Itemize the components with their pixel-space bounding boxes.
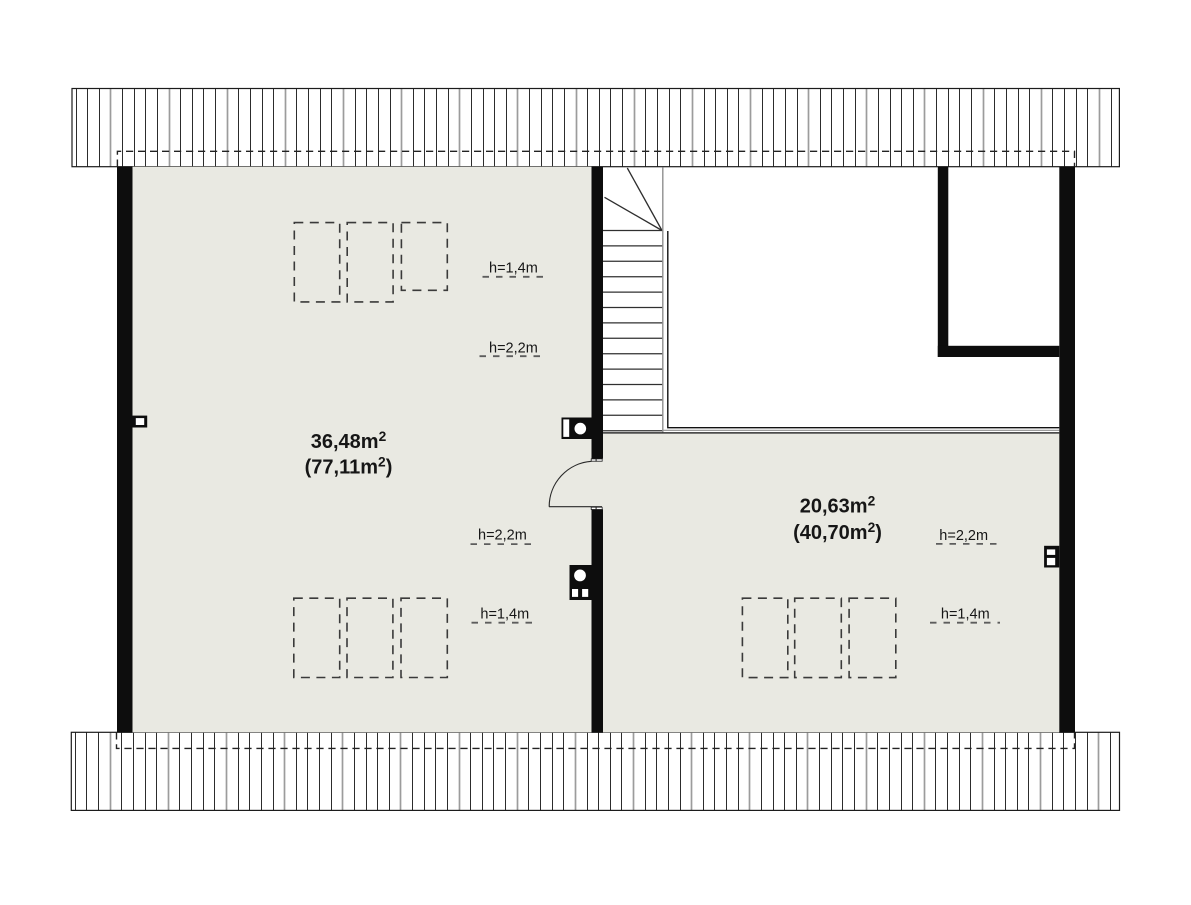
svg-text:20,63m2: 20,63m2 bbox=[800, 494, 876, 518]
svg-text:36,48m2: 36,48m2 bbox=[311, 429, 387, 453]
svg-text:h=2,2m: h=2,2m bbox=[478, 528, 527, 544]
svg-text:h=2,2m: h=2,2m bbox=[939, 528, 988, 544]
svg-text:h=1,4m: h=1,4m bbox=[489, 261, 538, 277]
svg-text:h=1,4m: h=1,4m bbox=[941, 607, 990, 623]
svg-text:h=1,4m: h=1,4m bbox=[480, 607, 529, 623]
svg-text:h=2,2m: h=2,2m bbox=[489, 341, 538, 357]
